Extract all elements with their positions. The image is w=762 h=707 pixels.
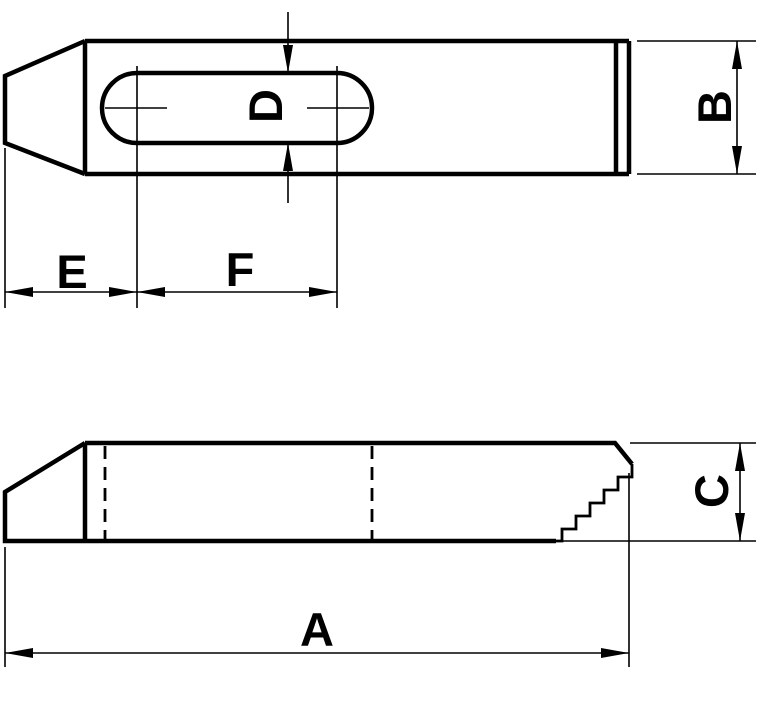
dim-D-arrowhead-top — [283, 45, 293, 73]
plan-nose-outline — [5, 41, 85, 174]
dim-E-label: E — [56, 245, 87, 298]
dim-A-arrowhead-left — [5, 648, 33, 658]
dim-F-arrowhead-right — [309, 287, 337, 297]
dim-B-arrowhead-bottom — [732, 146, 742, 174]
side-step-serrations — [556, 464, 632, 541]
dimension-C: C — [558, 443, 756, 541]
dim-B-arrowhead-top — [732, 41, 742, 69]
dim-E-arrowhead-right — [109, 287, 137, 297]
side-view: C A — [5, 443, 756, 667]
dim-A-label: A — [300, 603, 334, 656]
dim-A-arrowhead-right — [601, 648, 629, 658]
dim-F-label: F — [226, 243, 255, 296]
dim-C-arrowhead-bottom — [735, 513, 745, 541]
dim-C-arrowhead-top — [735, 443, 745, 471]
side-body-outline — [5, 443, 632, 541]
dim-B-label: B — [688, 90, 741, 124]
clamp-dimension-drawing: D B E F — [0, 0, 762, 707]
dim-C-label: C — [685, 474, 738, 508]
dimension-B: B — [637, 41, 756, 174]
dimension-A: A — [5, 473, 629, 667]
hidden-slot-edges — [105, 446, 372, 539]
dim-D-label: D — [239, 89, 292, 123]
dim-E-arrowhead-left — [5, 287, 33, 297]
plan-view: D B E F — [5, 12, 756, 308]
dim-F-arrowhead-left — [137, 287, 165, 297]
technical-drawing-page: D B E F — [0, 0, 762, 707]
dim-D-arrowhead-bottom — [283, 143, 293, 171]
